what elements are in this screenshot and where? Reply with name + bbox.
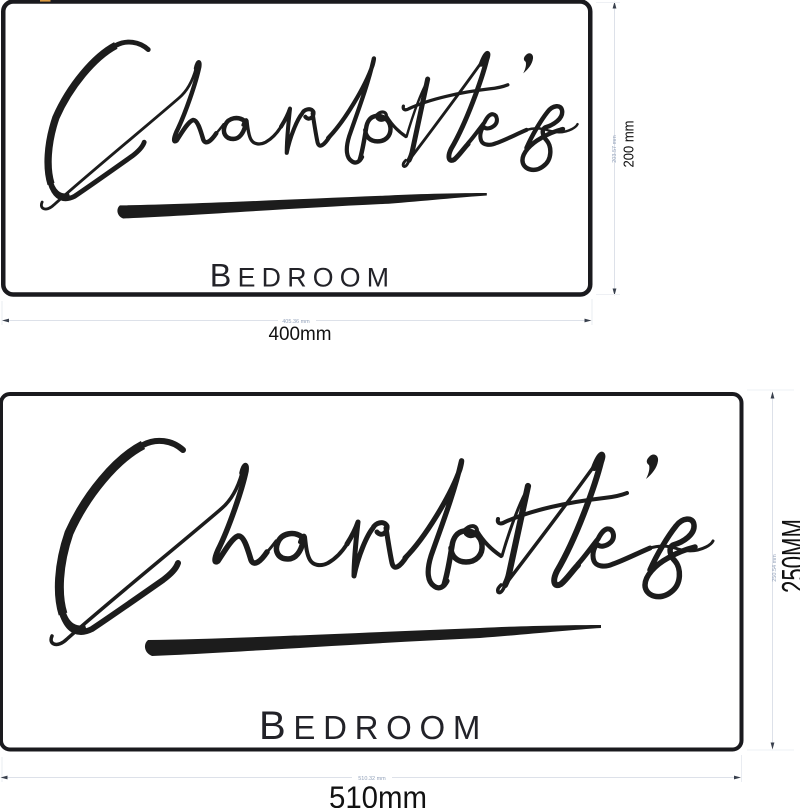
svg-text:510mm: 510mm bbox=[329, 779, 427, 808]
svg-text:400mm: 400mm bbox=[269, 323, 332, 345]
svg-text:250.54 mm: 250.54 mm bbox=[772, 554, 778, 582]
svg-text:250MM: 250MM bbox=[775, 519, 800, 593]
svg-text:203.57 mm: 203.57 mm bbox=[612, 135, 618, 163]
svg-text:200 mm: 200 mm bbox=[621, 121, 638, 168]
